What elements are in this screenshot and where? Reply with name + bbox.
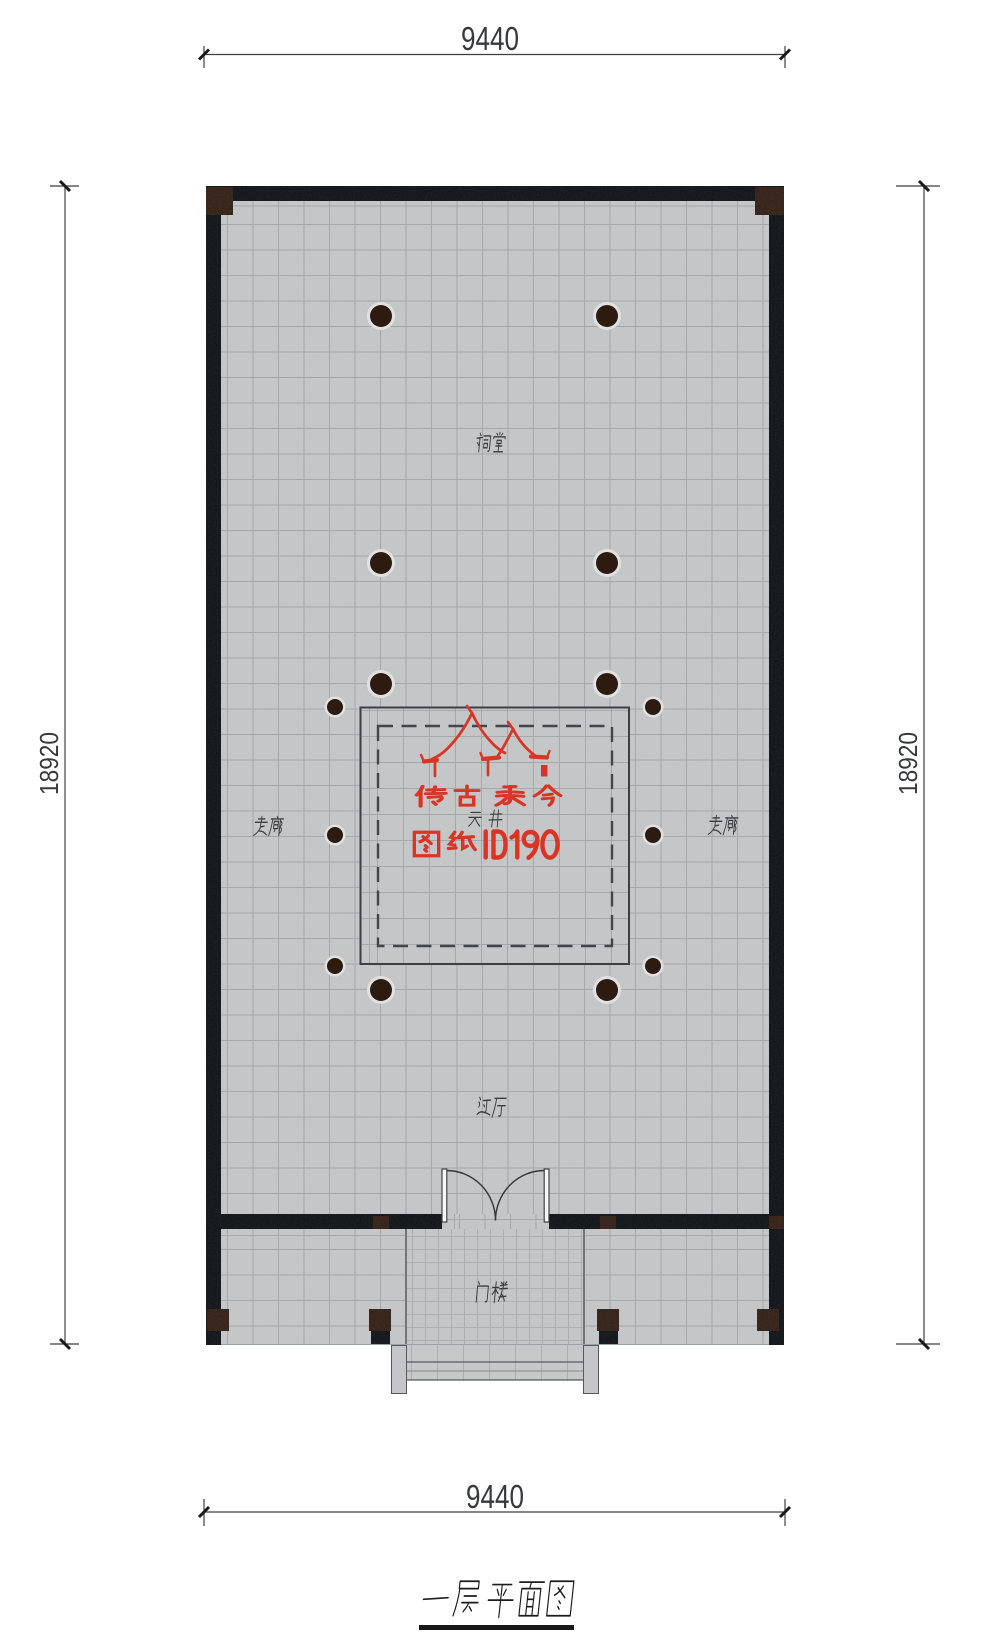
svg-text:18920: 18920 <box>34 732 64 795</box>
svg-text:9440: 9440 <box>466 1478 524 1515</box>
svg-text:9440: 9440 <box>461 20 519 57</box>
svg-text:18920: 18920 <box>893 732 923 795</box>
